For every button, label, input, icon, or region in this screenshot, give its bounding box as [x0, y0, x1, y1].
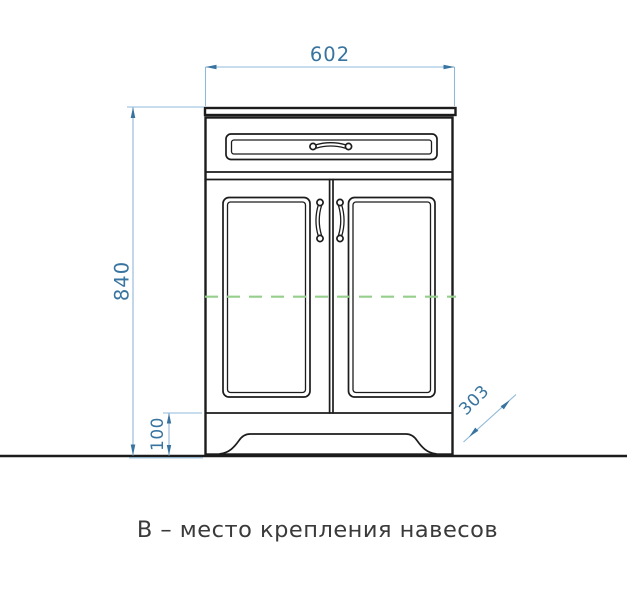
left-door-handle-icon	[317, 199, 323, 241]
arrow-right-icon	[444, 65, 455, 70]
dimension-plinth: 100	[148, 413, 202, 456]
caption: В – место крепления навесов	[137, 517, 498, 543]
arrow-up-icon	[131, 107, 136, 118]
dimension-height: 840	[111, 107, 205, 458]
right-door-handle-icon	[337, 199, 343, 241]
arrow-left-icon	[206, 65, 217, 70]
arrow-down-left-icon	[469, 428, 478, 437]
drawer-section	[206, 134, 453, 180]
drawer-handle-icon	[310, 143, 352, 149]
dimension-plinth-label: 100	[148, 417, 168, 451]
drawer-front-outer	[226, 134, 437, 160]
cabinet-dimension-drawing: 602 840 100 303 В – место крепления	[0, 0, 627, 600]
countertop	[205, 108, 456, 115]
dimension-depth: 303	[455, 381, 516, 442]
dimension-width: 602	[206, 43, 455, 106]
cabinet-front-view	[205, 108, 456, 455]
dimension-width-label: 602	[310, 43, 350, 66]
dimension-depth-label: 303	[455, 381, 493, 419]
arrow-up-right-icon	[501, 400, 510, 409]
technical-drawing-page: 602 840 100 303 В – место крепления	[0, 0, 627, 600]
dimension-height-label: 840	[111, 261, 134, 301]
base-apron-curve	[220, 434, 436, 454]
arrow-down-icon	[131, 445, 136, 456]
